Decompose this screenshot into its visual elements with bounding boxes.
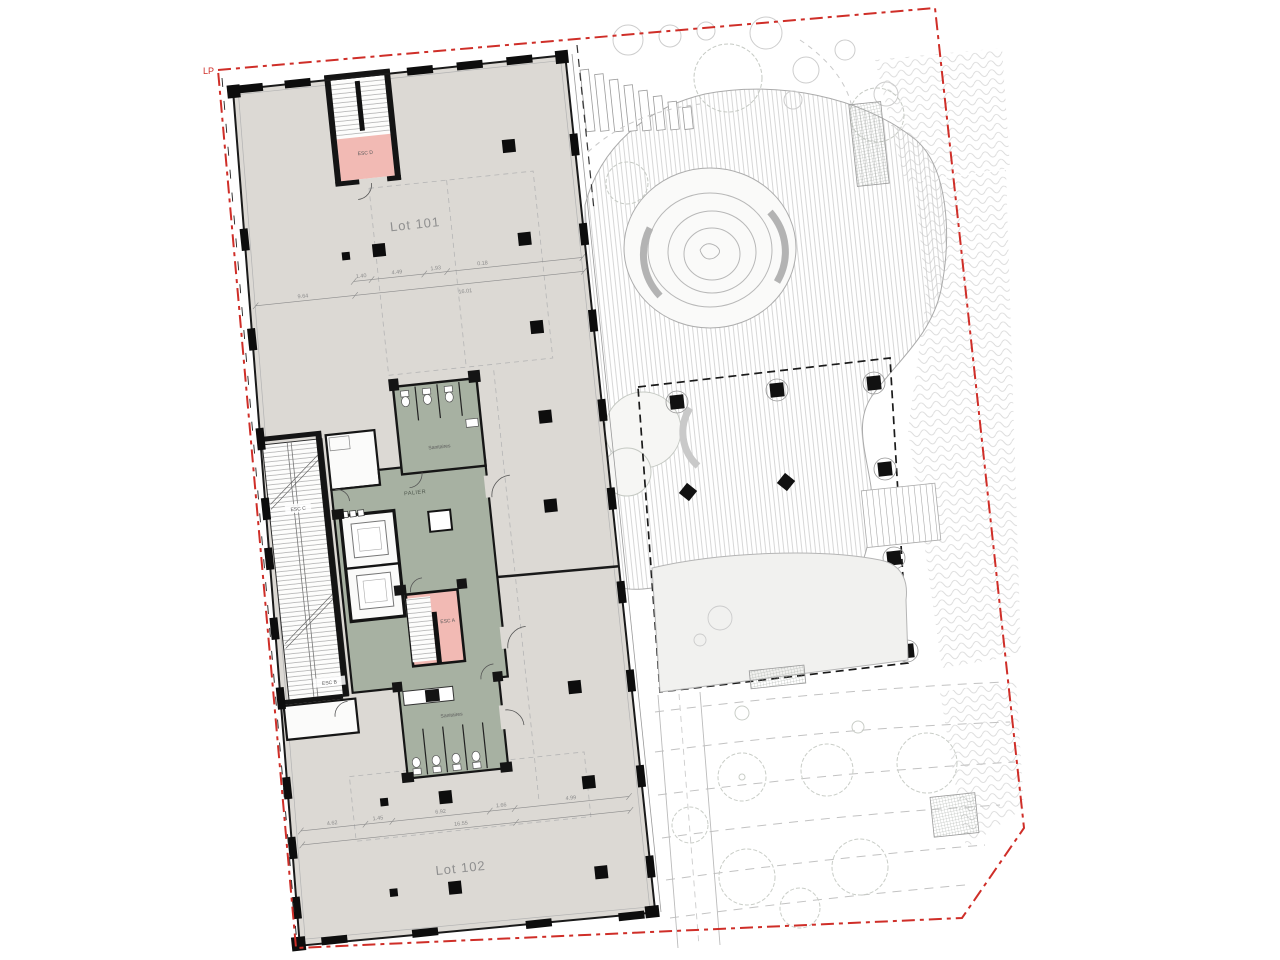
dim-bot-3: 1.66	[496, 802, 507, 809]
lower-garden-trees	[672, 706, 957, 928]
stair-esc-a: ESC A	[406, 589, 465, 666]
dim-top-3: 1.93	[430, 265, 441, 272]
site-plan-svg: 1.40 4.49 1.93 0.18 9.64 16.01 4.62 1.45…	[0, 0, 1280, 960]
dim-bot-4: 4.99	[565, 795, 576, 802]
walkway-south	[658, 692, 720, 948]
dim-top-4: 0.18	[477, 260, 488, 267]
dim-top-0: 9.64	[297, 293, 308, 300]
dim-bot-1: 1.45	[372, 815, 383, 822]
gravel-square-lower	[930, 793, 979, 837]
elevator-shafts	[340, 507, 405, 622]
garden-steps-top	[580, 59, 693, 140]
stair-esc-d: ESC D	[324, 69, 401, 187]
floor-plan-sheet: 1.40 4.49 1.93 0.18 9.64 16.01 4.62 1.45…	[0, 0, 1280, 960]
duct-box	[428, 510, 452, 532]
bottom-left-room	[284, 699, 359, 740]
garden-mound	[624, 168, 796, 328]
lp-marker: LP	[203, 66, 214, 76]
dim-bot-2: 6.92	[435, 809, 446, 816]
vestibule-room	[326, 430, 380, 490]
dim-top-1: 1.40	[356, 273, 367, 280]
dim-bot-0: 4.62	[327, 820, 338, 827]
dim-top-2: 4.49	[391, 269, 402, 276]
garden-steps-right	[861, 483, 941, 547]
